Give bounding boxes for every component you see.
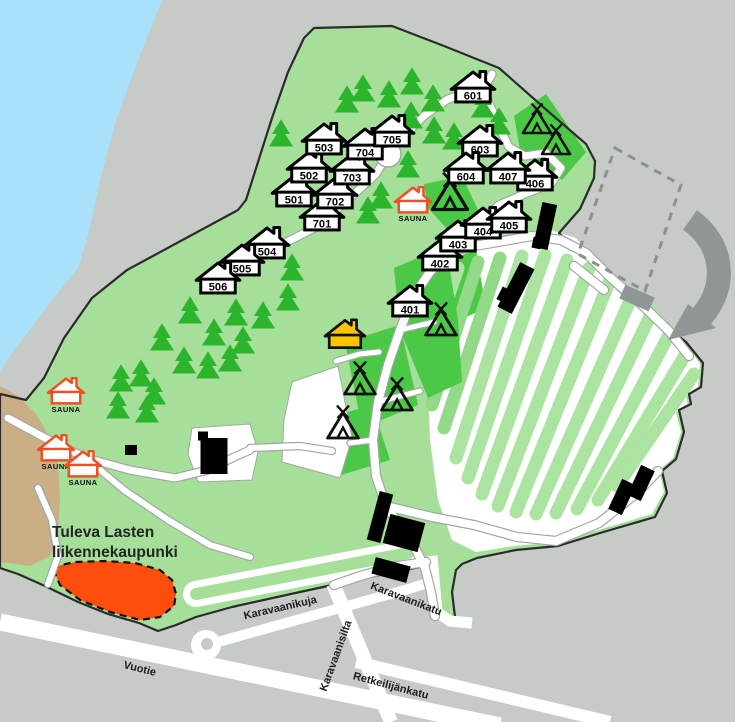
cabin-number: 506 [209,281,227,293]
area-label-line: liikennekaupunki [52,544,178,561]
house-body [329,335,361,348]
sauna-label: SAUNA [51,405,80,414]
cabin-number: 604 [457,171,476,183]
cabin-number: 401 [401,304,419,316]
service-building [201,438,228,474]
house-body [52,392,81,403]
cabin-number: 601 [464,90,482,102]
service-building [198,432,208,441]
cabin-number: 403 [449,239,467,251]
house-body [42,449,71,460]
cabin-number: 503 [315,142,333,154]
camp-path [350,440,373,443]
service-building [125,445,137,455]
cabin-number: 406 [526,178,544,190]
cabin-number: 402 [431,258,449,270]
cabin-number: 703 [343,172,361,184]
cabin-number: 505 [233,263,251,275]
cabin-number: 504 [258,246,277,258]
cabin-number: 404 [474,226,493,238]
cabin-number: 705 [383,134,401,146]
sauna-label: SAUNA [398,214,427,223]
cabin-number: 702 [326,196,344,208]
cul-de-sac-island [201,638,213,650]
service-area [282,366,352,478]
cabin-number: 502 [300,170,318,182]
cabin-number: 701 [313,218,331,230]
house-body [69,465,98,476]
sauna-label: SAUNA [68,478,97,487]
campsite-map-root: 5015025035045055067017027037047056016036… [0,0,735,722]
cabin-number: 405 [500,220,518,232]
area-label-line: Tuleva Lasten [52,524,154,541]
campsite-map: 5015025035045055067017027037047056016036… [0,0,735,722]
cabin-number: 501 [285,194,303,206]
cabin-number: 704 [356,147,375,159]
house-body [399,201,428,212]
cabin-number: 407 [499,171,517,183]
